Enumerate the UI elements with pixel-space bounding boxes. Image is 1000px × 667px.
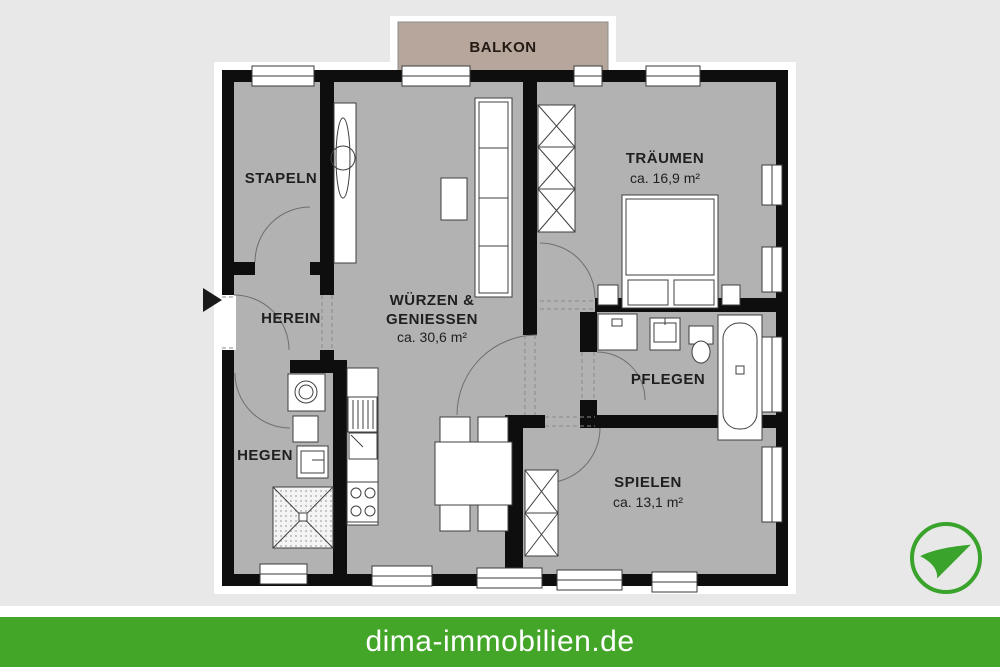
floorplan-drawing: BALKON	[195, 5, 815, 610]
balcony: BALKON	[398, 22, 608, 72]
shower	[273, 487, 333, 548]
window	[557, 570, 622, 590]
window	[762, 337, 782, 412]
window	[402, 66, 470, 86]
stove	[347, 482, 378, 522]
window	[574, 66, 602, 86]
label-hegen: HEGEN	[237, 447, 293, 464]
chair	[440, 505, 470, 531]
shelf-with-plant	[331, 103, 356, 263]
label-herein: HEREIN	[261, 310, 321, 327]
label-stapeln: STAPELN	[245, 170, 317, 187]
bathroom-sink	[650, 318, 680, 350]
footer-bar: dima-immobilien.de	[0, 617, 1000, 667]
label-spielen: SPIELEN	[614, 474, 682, 491]
cabinet	[293, 416, 318, 442]
chair	[478, 417, 508, 443]
bathtub	[718, 315, 762, 440]
hegen-sink	[297, 446, 328, 478]
dining-table	[435, 442, 512, 505]
footer-domain-text: dima-immobilien.de	[365, 625, 634, 659]
floorplan-page: BALKON	[0, 0, 1000, 667]
window	[762, 247, 782, 292]
wardrobe-spielen	[525, 470, 558, 556]
chair	[440, 417, 470, 443]
window	[477, 568, 542, 588]
entrance-door-gap	[220, 295, 236, 350]
footer-white-strip	[0, 606, 1000, 617]
nightstand	[722, 285, 740, 305]
window	[372, 566, 432, 586]
area-spielen: ca. 13,1 m²	[613, 494, 683, 510]
agency-logo	[910, 522, 982, 594]
window	[652, 572, 697, 592]
wardrobe-traeumen	[538, 105, 575, 232]
label-wuerzen-2: GENIESSEN	[386, 311, 478, 328]
chair	[478, 505, 508, 531]
window	[646, 66, 700, 86]
washing-machine-pflegen	[598, 314, 637, 350]
nightstand	[598, 285, 618, 305]
pillow	[674, 280, 714, 305]
area-wuerzen: ca. 30,6 m²	[397, 329, 467, 345]
label-wuerzen-1: WÜRZEN &	[390, 292, 475, 309]
paper-plane-icon	[914, 526, 978, 590]
window	[762, 447, 782, 522]
window	[762, 165, 782, 205]
sofa	[475, 98, 512, 297]
area-traeumen: ca. 16,9 m²	[630, 170, 700, 186]
coffee-table	[441, 178, 467, 220]
double-bed	[622, 195, 718, 308]
label-traeumen: TRÄUMEN	[626, 150, 705, 167]
window	[260, 564, 307, 584]
balcony-label: BALKON	[469, 39, 536, 56]
washing-machine-hegen	[288, 374, 325, 411]
window	[252, 66, 314, 86]
pillow	[628, 280, 668, 305]
label-pflegen: PFLEGEN	[631, 371, 705, 388]
kitchen-counter	[347, 368, 378, 525]
